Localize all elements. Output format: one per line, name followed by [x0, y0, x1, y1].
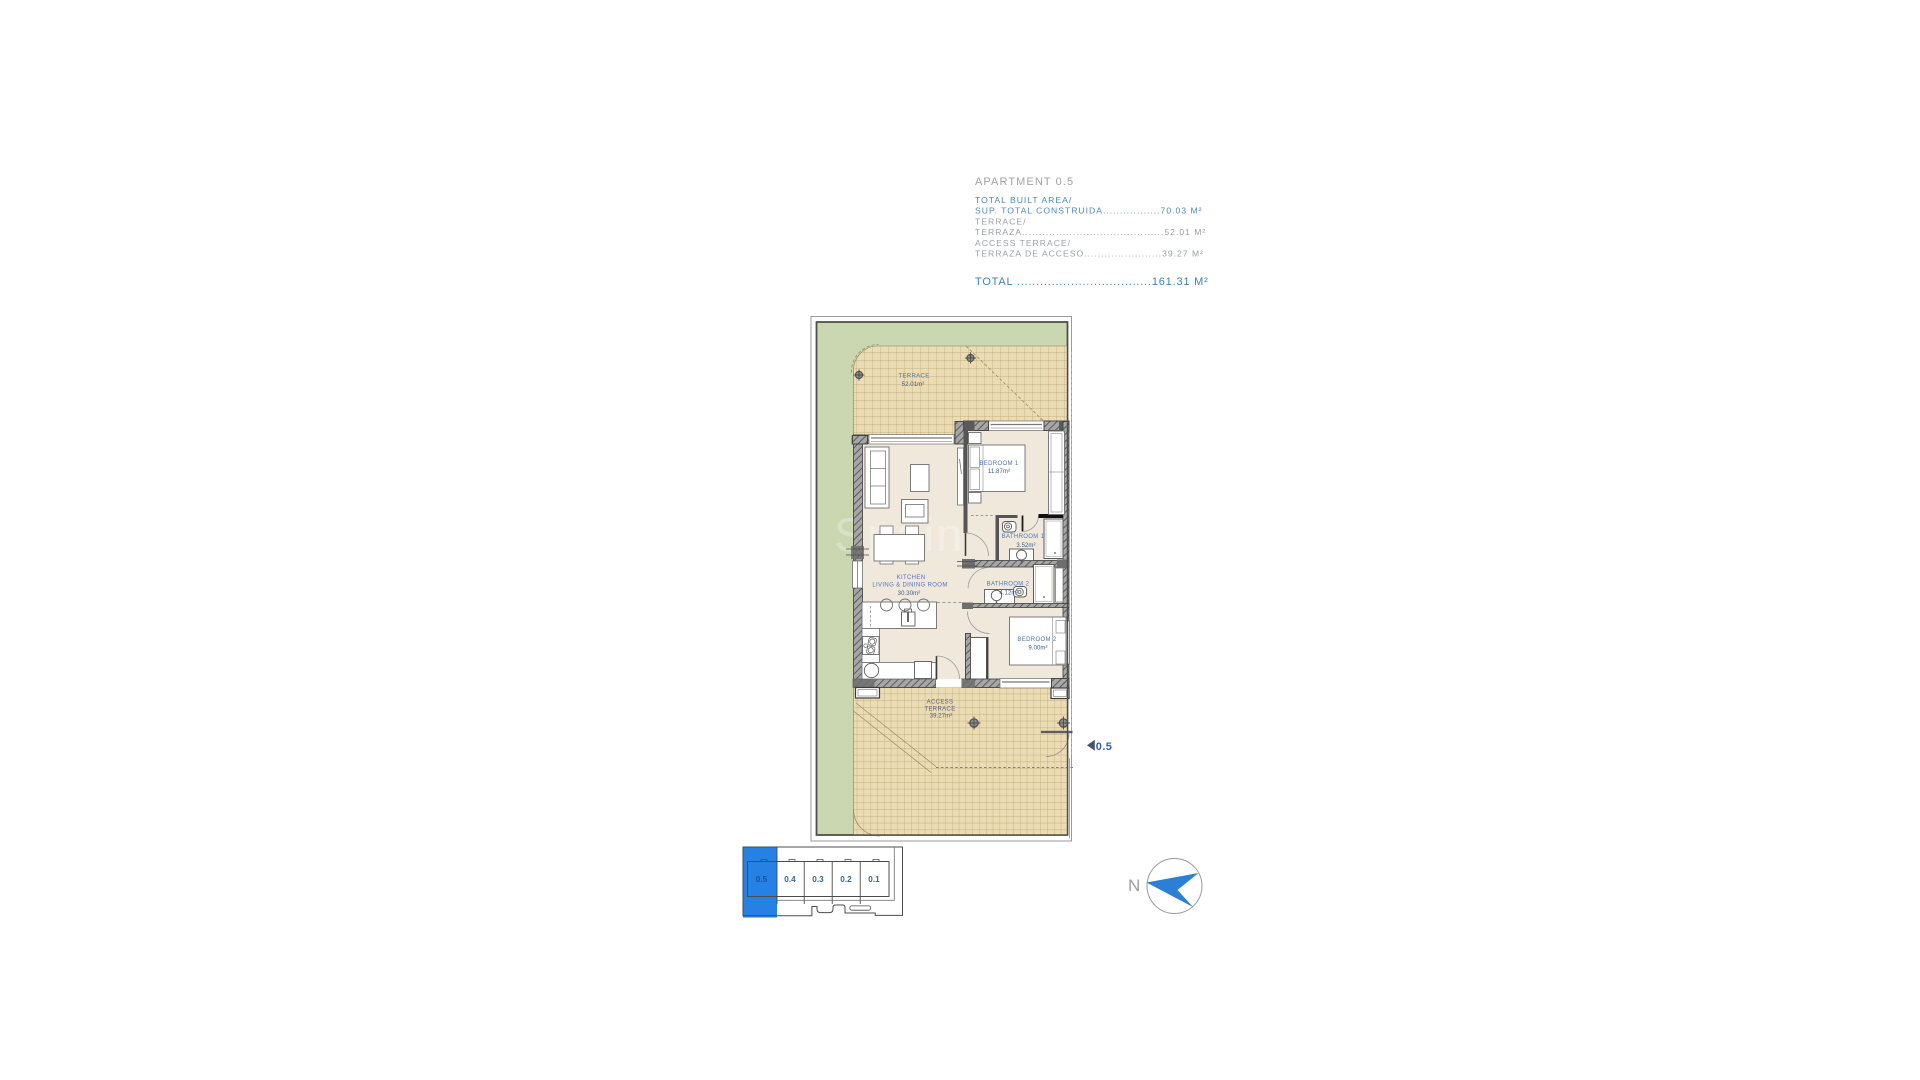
svg-text:0.2: 0.2 [840, 875, 852, 884]
svg-text:9.00m²: 9.00m² [1028, 646, 1047, 652]
svg-text:TOTAL ........................: TOTAL ..................................… [975, 276, 1209, 288]
svg-text:3.52m²: 3.52m² [1016, 543, 1035, 549]
svg-text:TERRACE/: TERRACE/ [975, 217, 1026, 227]
svg-text:APARTMENT 0.5: APARTMENT 0.5 [975, 176, 1074, 188]
svg-text:TOTAL BUILT AREA/: TOTAL BUILT AREA/ [975, 195, 1072, 205]
svg-text:TERRACE: TERRACE [924, 707, 955, 713]
svg-text:BATHROOM 1: BATHROOM 1 [1002, 534, 1045, 540]
svg-text:SUP. TOTAL CONSTRUIDA.........: SUP. TOTAL CONSTRUIDA.................70… [975, 206, 1202, 216]
svg-text:N: N [1128, 876, 1140, 895]
svg-text:52.01m²: 52.01m² [902, 382, 925, 388]
svg-text:BATHROOM 2: BATHROOM 2 [987, 582, 1030, 588]
svg-text:0.3: 0.3 [812, 875, 824, 884]
svg-text:TERRAZA DE ACCESO.............: TERRAZA DE ACCESO.......................… [975, 249, 1204, 259]
svg-text:0.4: 0.4 [784, 875, 796, 884]
svg-text:4.12m²: 4.12m² [999, 591, 1018, 597]
svg-text:0.5: 0.5 [756, 875, 768, 884]
svg-text:39.27m²: 39.27m² [930, 714, 953, 720]
svg-text:11.87m²: 11.87m² [988, 469, 1010, 475]
svg-text:0.5: 0.5 [1096, 741, 1113, 753]
svg-text:KITCHEN: KITCHEN [897, 575, 926, 581]
svg-text:ACCESS: ACCESS [927, 700, 954, 706]
svg-text:BEDROOM 2: BEDROOM 2 [1017, 637, 1056, 643]
svg-text:0.1: 0.1 [868, 875, 880, 884]
svg-text:ACCESS TERRACE/: ACCESS TERRACE/ [975, 238, 1071, 248]
svg-text:LIVING & DINING ROOM: LIVING & DINING ROOM [872, 583, 947, 589]
svg-text:30.30m²: 30.30m² [898, 591, 921, 597]
svg-text:TERRACE: TERRACE [898, 374, 929, 380]
svg-text:TERRAZA.......................: TERRAZA.................................… [975, 227, 1206, 237]
svg-text:BEDROOM 1: BEDROOM 1 [979, 461, 1018, 467]
